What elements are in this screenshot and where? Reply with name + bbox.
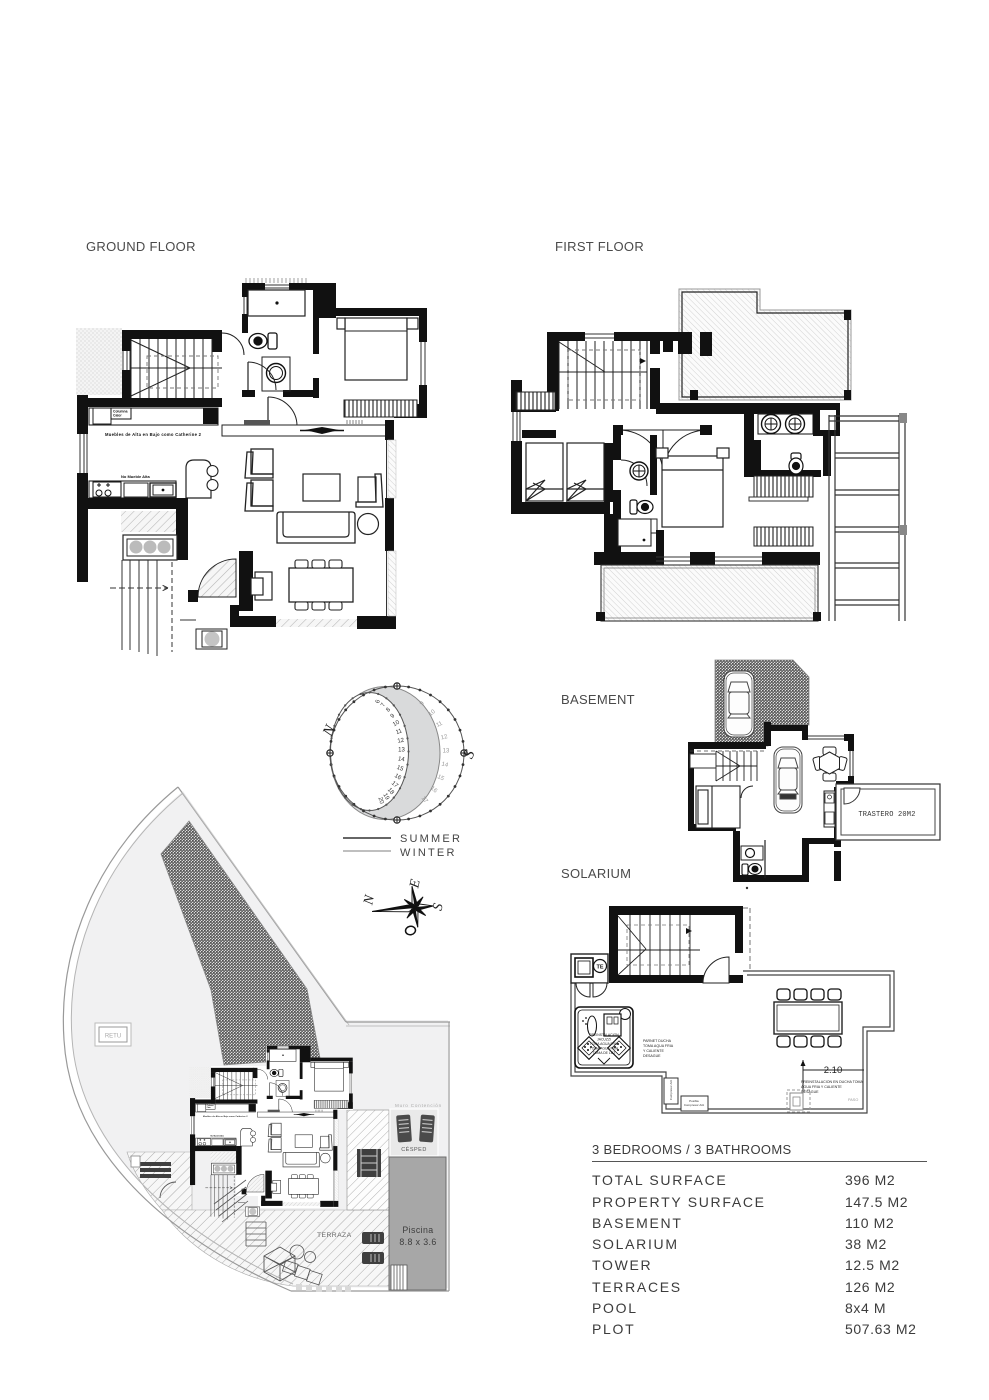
svg-text:S: S [431, 902, 447, 912]
svg-text:13: 13 [398, 748, 405, 754]
svg-text:N: N [361, 893, 378, 907]
svg-text:TOMA AGUA FRIA: TOMA AGUA FRIA [590, 1042, 619, 1046]
svg-text:Muro Contención: Muro Contención [395, 1103, 442, 1108]
svg-text:Compresor A/A: Compresor A/A [669, 1080, 673, 1100]
svg-text:14: 14 [441, 762, 449, 769]
svg-text:11: 11 [435, 721, 444, 729]
svg-text:Muebles de Alta en Bajo como C: Muebles de Alta en Bajo como Catherine 2 [105, 432, 202, 437]
svg-text:15: 15 [436, 774, 445, 783]
svg-text:PASO: PASO [848, 1098, 858, 1102]
svg-text:JACUZZI: JACUZZI [597, 1038, 611, 1042]
svg-text:8.8 x 3.6: 8.8 x 3.6 [399, 1237, 436, 1247]
svg-text:WINTER: WINTER [400, 847, 457, 859]
svg-text:E: E [407, 878, 424, 891]
svg-text:TOMA AGUA FRIA: TOMA AGUA FRIA [590, 1047, 619, 1051]
svg-text:No Mueble Alta: No Mueble Alta [121, 474, 151, 479]
svg-text:RETU: RETU [105, 1034, 121, 1040]
svg-text:Piscina: Piscina [402, 1225, 433, 1235]
svg-text:12: 12 [440, 734, 448, 741]
svg-text:13: 13 [443, 749, 450, 755]
svg-text:TERRAZA: TERRAZA [317, 1232, 352, 1239]
svg-text:AGUA FRIA Y CALIENTE: AGUA FRIA Y CALIENTE [801, 1085, 842, 1089]
svg-text:PARNET DUCHA: PARNET DUCHA [643, 1039, 672, 1043]
svg-text:DESAGUE: DESAGUE [643, 1054, 661, 1058]
svg-text:16: 16 [429, 786, 438, 795]
svg-text:SUMMER: SUMMER [400, 833, 462, 845]
svg-text:PREINSTALACION: PREINSTALACION [589, 1033, 619, 1037]
svg-text:CÉSPED: CÉSPED [401, 1146, 427, 1153]
svg-text:10: 10 [428, 708, 437, 717]
svg-text:Y CALIENTE: Y CALIENTE [643, 1049, 665, 1053]
svg-text:PREINSTALACION EN DUCHA TOMA: PREINSTALACION EN DUCHA TOMA [801, 1080, 864, 1084]
svg-text:Calor: Calor [113, 414, 122, 418]
svg-text:TRASTERO 20M2: TRASTERO 20M2 [858, 811, 915, 819]
svg-text:2.10: 2.10 [824, 1065, 843, 1076]
svg-text:TOMA DE LUZ: TOMA DE LUZ [593, 1051, 616, 1055]
svg-text:TOMA AQUA FRIA: TOMA AQUA FRIA [643, 1044, 674, 1048]
svg-text:Compresor A/A: Compresor A/A [684, 1103, 704, 1107]
svg-text:TE: TE [596, 965, 603, 971]
